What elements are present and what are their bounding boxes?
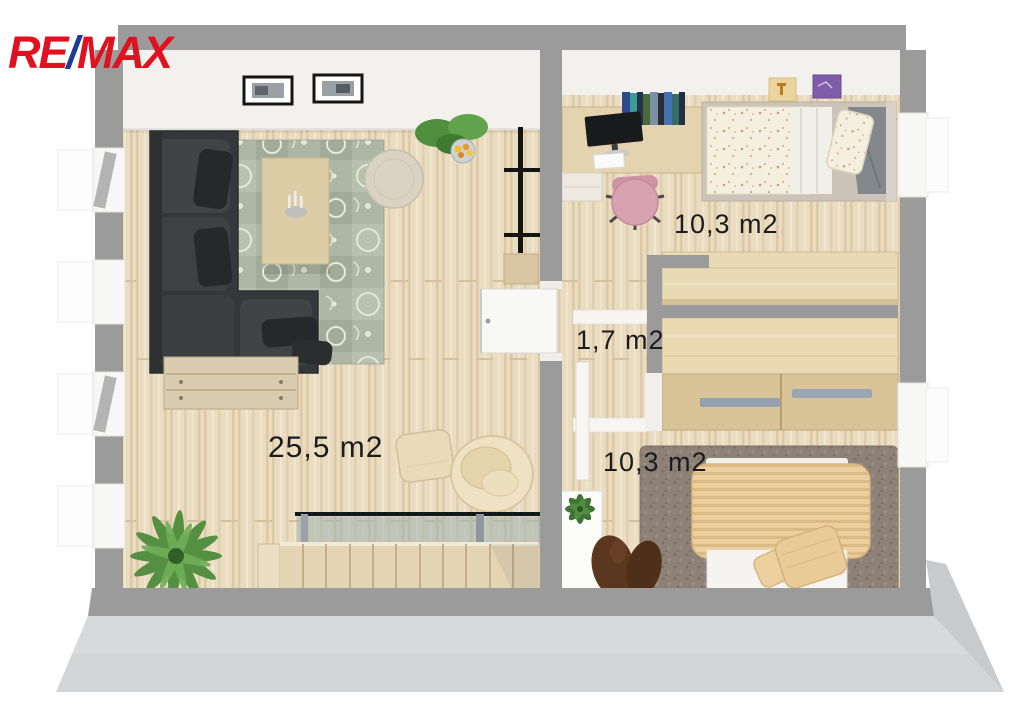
logo-re: RE	[8, 27, 67, 78]
single-bed	[702, 102, 896, 201]
logo-slash: /	[67, 27, 78, 78]
floor-plan-image: RE/MAX 25,5 m2 10,3 m2 1,7 m2 10,3 m2	[0, 0, 1024, 724]
door-leaf-hallway	[576, 362, 589, 480]
small-plant	[565, 494, 595, 524]
side-cabinet	[504, 254, 538, 284]
lounge-armchair	[451, 436, 533, 512]
floor-plan-graphic	[0, 0, 1024, 724]
staircase	[258, 542, 538, 590]
door-leaf-living	[481, 289, 557, 353]
door-threshold-top	[573, 310, 647, 324]
storage-bench	[164, 357, 298, 409]
label-living-room-area: 25,5 m2	[268, 431, 383, 465]
pouf	[365, 150, 423, 208]
logo-max: MAX	[77, 27, 171, 78]
double-bed	[692, 458, 870, 593]
label-hallway-area: 1,7 m2	[576, 325, 665, 356]
label-bedroom-bottom-area: 10,3 m2	[603, 447, 708, 478]
footstool	[395, 428, 455, 483]
label-bedroom-top-area: 10,3 m2	[674, 209, 779, 240]
desk-paper	[594, 153, 625, 169]
remax-logo: RE/MAX	[8, 30, 171, 75]
wardrobe-bottom-bedroom	[662, 318, 898, 430]
coffee-table	[262, 158, 330, 274]
